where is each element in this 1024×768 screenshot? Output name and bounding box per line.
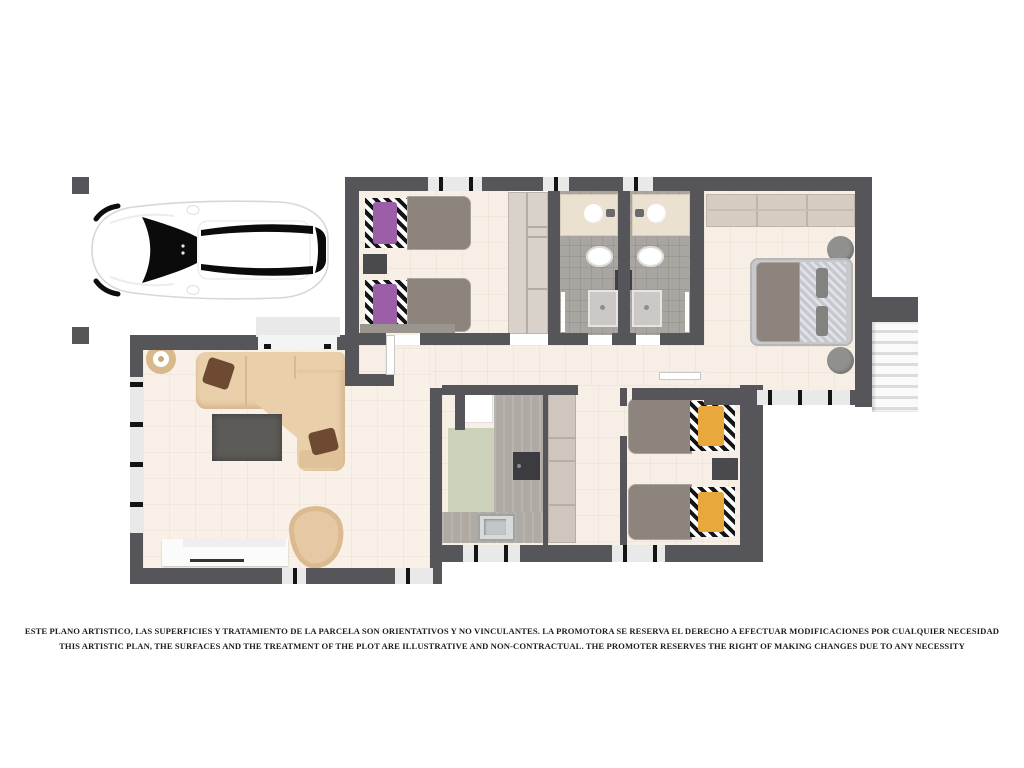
door-icon bbox=[387, 336, 394, 374]
wall bbox=[632, 388, 740, 400]
single-bed-icon bbox=[628, 398, 735, 454]
shower-glass bbox=[561, 292, 565, 332]
bed-duvet bbox=[407, 196, 471, 250]
shower-drain bbox=[600, 305, 605, 310]
window-icon bbox=[757, 390, 850, 405]
wall bbox=[548, 333, 588, 345]
wardrobe-icon bbox=[508, 192, 548, 334]
wall bbox=[345, 333, 386, 345]
tv-sideboard-icon bbox=[162, 539, 288, 566]
shower-icon bbox=[588, 290, 618, 327]
faucet-icon bbox=[606, 209, 615, 217]
double-bed-icon bbox=[750, 258, 853, 346]
wall bbox=[548, 190, 560, 345]
shower-glass bbox=[685, 292, 689, 332]
single-bed-icon bbox=[365, 196, 471, 250]
cabinet-shelf bbox=[548, 460, 576, 462]
nightstand-icon bbox=[712, 458, 738, 480]
bed-pillow bbox=[373, 202, 397, 244]
wall bbox=[612, 333, 636, 345]
window-icon bbox=[395, 568, 433, 584]
wall bbox=[855, 177, 872, 407]
wardrobe-shelf bbox=[528, 226, 548, 228]
shower-drain bbox=[644, 305, 649, 310]
bed-duvet bbox=[628, 484, 692, 540]
wardrobe-icon bbox=[706, 194, 855, 227]
sideboard-top bbox=[183, 539, 286, 547]
wardrobe-shelf bbox=[528, 236, 548, 238]
sink-bowl bbox=[484, 519, 506, 535]
stairs-icon bbox=[872, 322, 918, 412]
sofa-cushion-line bbox=[245, 356, 247, 406]
wall bbox=[130, 335, 258, 350]
disclaimer-line-en: THIS ARTISTIC PLAN, THE SURFACES AND THE… bbox=[0, 639, 1024, 654]
carport-pillar bbox=[72, 177, 89, 194]
wall bbox=[872, 297, 918, 322]
kitchen-sink-icon bbox=[478, 514, 515, 541]
single-bed-icon bbox=[628, 484, 735, 540]
wardrobe-divider bbox=[526, 192, 528, 334]
bed-pillow bbox=[373, 284, 397, 326]
wall bbox=[740, 385, 763, 547]
wall bbox=[620, 388, 627, 406]
bed-duvet bbox=[628, 398, 692, 454]
window-icon bbox=[543, 177, 569, 191]
disclaimer: ESTE PLANO ARTISTICO, LAS SUPERFICIES Y … bbox=[0, 624, 1024, 654]
window-icon bbox=[463, 545, 520, 562]
pouf-icon bbox=[827, 347, 854, 374]
entry-porch bbox=[256, 317, 340, 337]
sink-icon bbox=[584, 204, 603, 223]
wall bbox=[618, 190, 630, 345]
wardrobe-shelf bbox=[528, 288, 548, 290]
door-tick bbox=[264, 344, 271, 349]
wall bbox=[660, 333, 704, 345]
wall bbox=[345, 177, 872, 191]
dresser-icon bbox=[360, 324, 455, 333]
wall bbox=[620, 436, 627, 545]
bed-pillow bbox=[698, 406, 724, 446]
door-icon bbox=[660, 373, 700, 379]
floor-plan-image: ESTE PLANO ARTISTICO, LAS SUPERFICIES Y … bbox=[0, 0, 1024, 768]
faucet-icon bbox=[635, 209, 644, 217]
carport-pillar bbox=[72, 327, 89, 344]
door-tick bbox=[324, 344, 331, 349]
window-icon bbox=[623, 177, 653, 191]
window-icon bbox=[282, 568, 306, 584]
bed-pillow bbox=[816, 268, 828, 298]
car-top-view-icon bbox=[82, 193, 337, 307]
wall bbox=[420, 333, 510, 345]
hall-cabinet-icon bbox=[548, 392, 576, 543]
toilet-icon bbox=[586, 246, 613, 267]
rug-icon bbox=[212, 414, 282, 461]
bed-pillow bbox=[816, 306, 828, 336]
disclaimer-line-es: ESTE PLANO ARTISTICO, LAS SUPERFICIES Y … bbox=[0, 624, 1024, 639]
wall bbox=[345, 177, 359, 386]
cooktop-knob bbox=[517, 464, 521, 468]
window-icon bbox=[428, 177, 482, 191]
cabinet-shelf bbox=[548, 437, 576, 439]
wall bbox=[690, 190, 704, 345]
toilet-icon bbox=[637, 246, 664, 267]
cabinet-shelf bbox=[548, 504, 576, 506]
wall bbox=[543, 388, 548, 545]
wall bbox=[455, 390, 465, 430]
plant-table-center bbox=[158, 356, 164, 362]
cooktop-icon bbox=[513, 452, 540, 480]
bed-pillow bbox=[698, 492, 724, 532]
wall bbox=[337, 335, 345, 350]
nightstand-icon bbox=[363, 254, 387, 274]
wardrobe-rail bbox=[706, 209, 855, 211]
tv-icon bbox=[190, 559, 244, 562]
window-icon bbox=[612, 545, 665, 562]
wall bbox=[346, 374, 394, 386]
wall bbox=[430, 388, 442, 570]
sink-icon bbox=[647, 204, 666, 223]
window-icon bbox=[130, 377, 143, 533]
bed-duvet bbox=[756, 262, 800, 342]
shower-icon bbox=[632, 290, 662, 327]
